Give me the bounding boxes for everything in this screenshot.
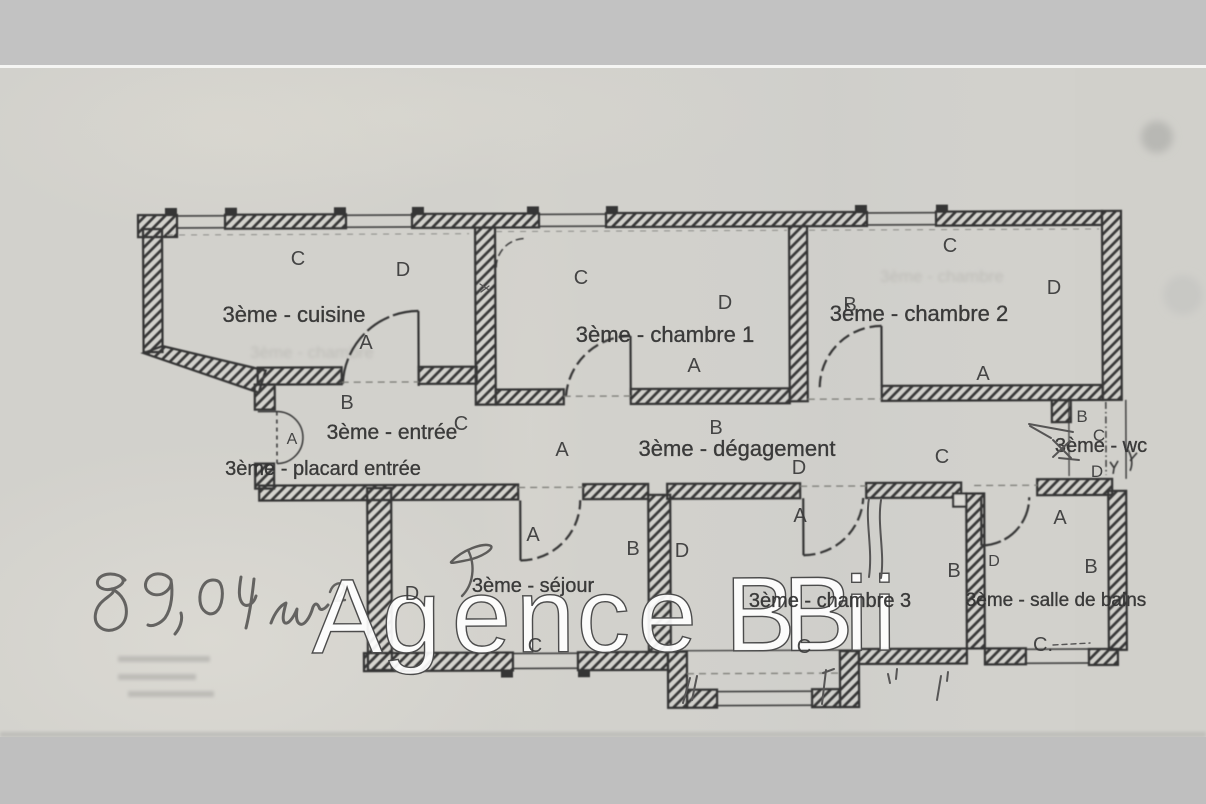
svg-text:3ème - chambre: 3ème - chambre xyxy=(880,267,1004,286)
svg-text:3ème - entrée: 3ème - entrée xyxy=(327,421,458,444)
svg-text:3ème - séjour: 3ème - séjour xyxy=(472,575,595,597)
svg-text:D: D xyxy=(988,553,1000,570)
svg-text:D: D xyxy=(396,259,410,281)
svg-text:C: C xyxy=(943,235,957,257)
svg-text:A: A xyxy=(555,439,569,461)
svg-text:D: D xyxy=(675,540,689,562)
svg-text:3ème - chambre 1: 3ème - chambre 1 xyxy=(576,322,755,347)
svg-text:C: C xyxy=(1093,426,1105,445)
svg-text:A: A xyxy=(526,524,540,546)
svg-text:B: B xyxy=(1084,556,1097,578)
svg-text:D: D xyxy=(1091,462,1103,481)
svg-text:A: A xyxy=(793,505,807,527)
svg-text:A: A xyxy=(359,332,373,354)
svg-text:D: D xyxy=(1047,277,1061,299)
svg-text:B: B xyxy=(1076,407,1087,426)
svg-text:B: B xyxy=(340,392,353,414)
svg-text:D: D xyxy=(792,457,806,479)
svg-text:C: C xyxy=(574,267,588,289)
svg-text:B: B xyxy=(626,538,639,560)
svg-text:B: B xyxy=(947,560,960,582)
svg-text:C: C xyxy=(454,413,468,435)
svg-text:A: A xyxy=(1053,507,1067,529)
svg-text:A: A xyxy=(687,355,701,377)
svg-text:D: D xyxy=(718,292,732,314)
svg-text:C.: C. xyxy=(1033,634,1053,656)
svg-text:C: C xyxy=(528,635,542,657)
svg-text:C: C xyxy=(797,636,811,658)
svg-text:3ème - cuisine: 3ème - cuisine xyxy=(222,302,365,327)
svg-text:3ème - chambre 3: 3ème - chambre 3 xyxy=(749,590,911,612)
svg-text:C: C xyxy=(935,446,949,468)
svg-text:A: A xyxy=(287,431,298,448)
svg-text:B: B xyxy=(709,417,722,439)
svg-text:3ème - salle de bains: 3ème - salle de bains xyxy=(966,590,1147,611)
svg-text:3ème - placard entrée: 3ème - placard entrée xyxy=(225,458,421,480)
svg-text:B: B xyxy=(843,294,856,316)
svg-text:A: A xyxy=(976,363,990,385)
svg-text:C: C xyxy=(291,248,305,270)
svg-text:D: D xyxy=(405,583,419,605)
